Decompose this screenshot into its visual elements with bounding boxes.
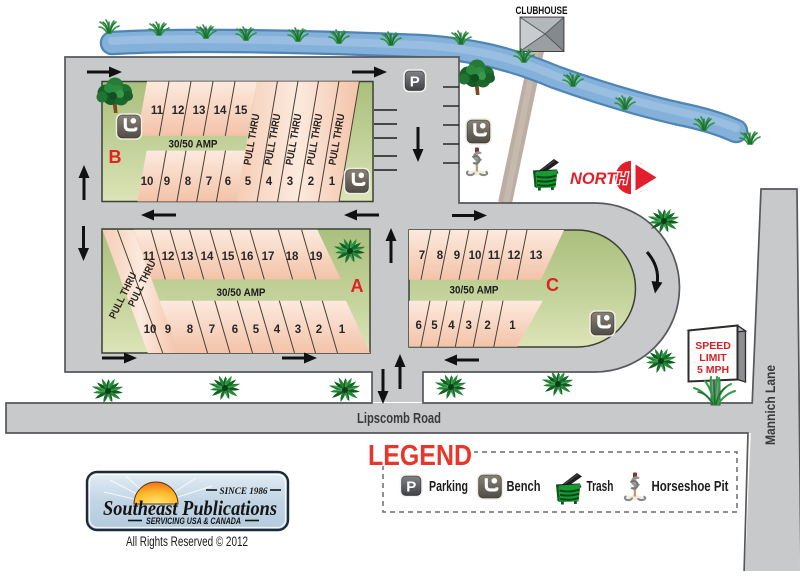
svg-text:12: 12 [172,105,185,117]
svg-text:13: 13 [193,105,206,117]
svg-text:5: 5 [431,320,438,332]
svg-text:12: 12 [508,250,521,262]
svg-text:11: 11 [488,250,501,262]
svg-text:8: 8 [185,176,192,188]
svg-text:12: 12 [162,251,175,263]
svg-text:15: 15 [235,105,248,117]
svg-text:7: 7 [419,250,425,262]
svg-text:8: 8 [187,324,194,336]
svg-text:1: 1 [509,320,516,332]
svg-text:5: 5 [253,324,260,336]
svg-text:A: A [351,276,364,296]
svg-text:6: 6 [232,324,238,336]
svg-text:10: 10 [141,176,154,188]
svg-text:2: 2 [308,176,314,188]
svg-text:SERVICING USA & CANADA: SERVICING USA & CANADA [146,516,241,526]
svg-text:10: 10 [469,250,482,262]
svg-text:7: 7 [209,324,215,336]
svg-text:Lipscomb Road: Lipscomb Road [357,411,441,427]
svg-text:8: 8 [437,250,444,262]
svg-text:Horseshoe Pit: Horseshoe Pit [652,478,729,495]
svg-text:5: 5 [245,176,252,188]
svg-text:NORTH: NORTH [570,170,629,188]
svg-text:4: 4 [266,176,273,188]
svg-text:13: 13 [181,251,194,263]
svg-text:SINCE 1986: SINCE 1986 [220,487,268,497]
svg-text:Bench: Bench [507,478,541,495]
svg-text:C: C [546,275,559,295]
svg-text:6: 6 [415,320,421,332]
svg-text:All Rights Reserved © 2012: All Rights Reserved © 2012 [126,534,248,549]
svg-text:4: 4 [448,320,455,332]
svg-text:LEGEND: LEGEND [368,440,472,472]
svg-text:17: 17 [262,251,275,263]
svg-text:9: 9 [164,176,170,188]
svg-text:5 MPH: 5 MPH [697,364,729,376]
svg-text:30/50 AMP: 30/50 AMP [217,287,266,299]
svg-text:CLUBHOUSE: CLUBHOUSE [516,5,568,17]
svg-text:7: 7 [206,176,212,188]
svg-text:3: 3 [295,324,301,336]
svg-text:4: 4 [274,324,281,336]
svg-text:15: 15 [222,251,235,263]
svg-text:14: 14 [201,251,214,263]
svg-text:Parking: Parking [429,478,468,495]
svg-text:3: 3 [287,176,293,188]
svg-text:30/50 AMP: 30/50 AMP [450,285,499,297]
svg-text:SPEED: SPEED [695,340,731,352]
svg-text:B: B [109,147,122,167]
svg-text:2: 2 [316,324,322,336]
svg-text:16: 16 [241,251,254,263]
svg-text:LIMIT: LIMIT [699,352,727,364]
svg-text:10: 10 [144,324,157,336]
svg-text:3: 3 [465,320,471,332]
svg-text:9: 9 [454,250,460,262]
svg-text:1: 1 [329,176,336,188]
svg-text:11: 11 [151,105,164,117]
svg-text:30/50 AMP: 30/50 AMP [169,139,218,151]
svg-text:13: 13 [530,250,543,262]
svg-text:Mannich Lane: Mannich Lane [763,365,778,445]
svg-text:1: 1 [339,324,346,336]
svg-text:18: 18 [286,251,299,263]
svg-text:Trash: Trash [587,478,614,495]
svg-text:2: 2 [484,320,490,332]
svg-text:9: 9 [165,324,171,336]
svg-text:6: 6 [225,176,231,188]
svg-text:19: 19 [310,251,323,263]
svg-text:14: 14 [214,105,227,117]
